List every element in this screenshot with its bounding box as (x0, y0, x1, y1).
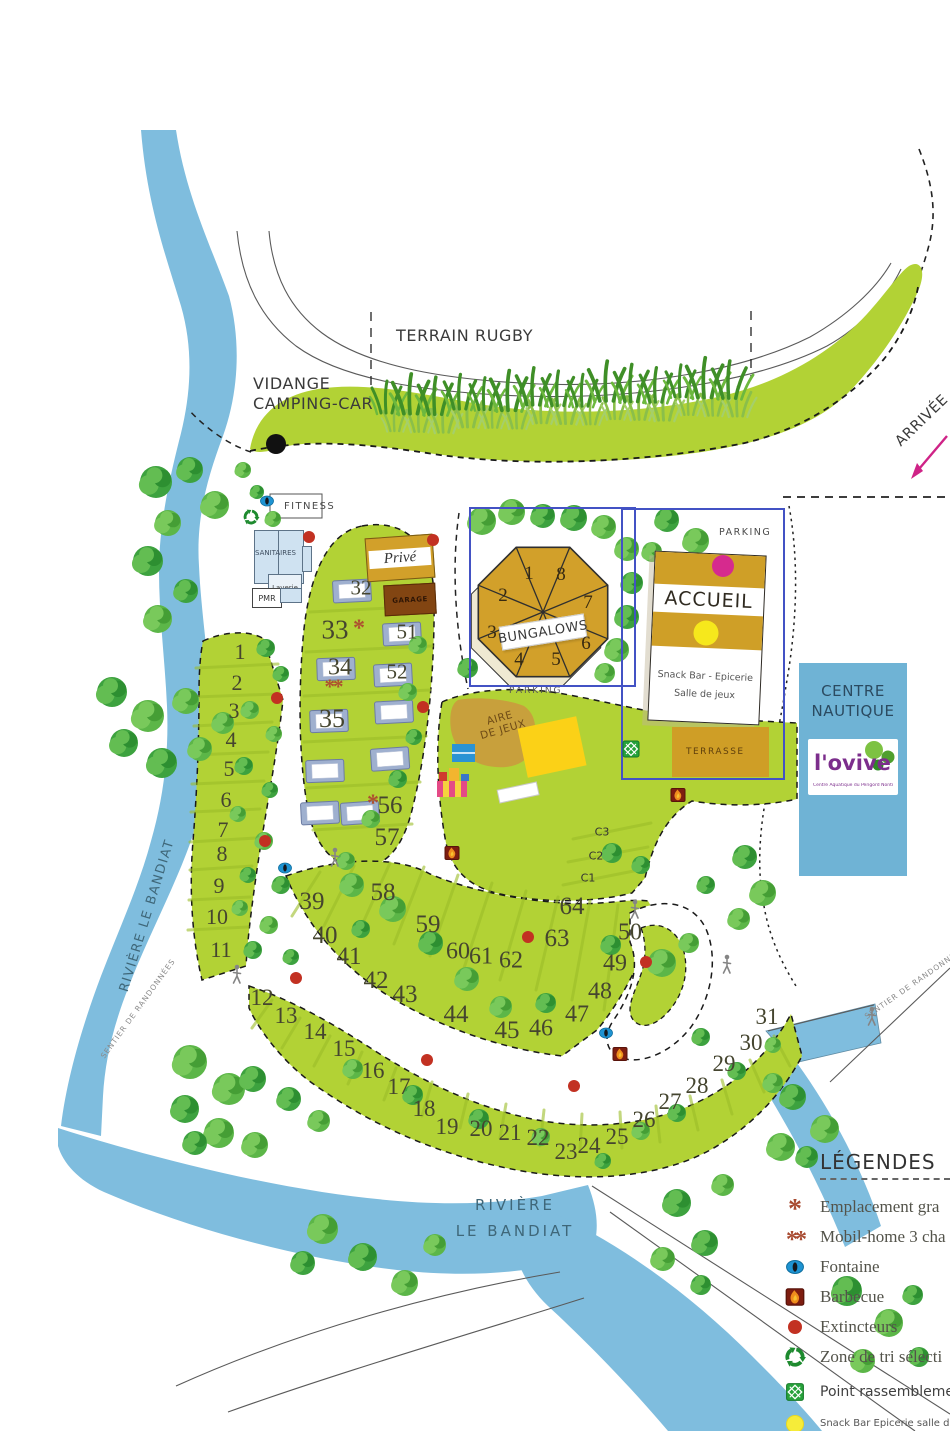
pitch-12: 12 (251, 985, 274, 1011)
bungalow-7: 7 (583, 592, 593, 614)
terrain-rugby-label: Terrain Rugby (396, 326, 533, 345)
tree-icon (614, 605, 639, 629)
pitch-21: 21 (499, 1120, 522, 1146)
pitch-52: 52 (387, 660, 408, 685)
pitch-47: 47 (565, 1002, 589, 1029)
tree-icon (498, 499, 525, 525)
pitch-29: 29 (713, 1051, 736, 1077)
pitch-19: 19 (436, 1114, 459, 1140)
pitch-39: 39 (300, 888, 325, 916)
barbecue-icon (780, 1283, 810, 1311)
tree-icon (614, 537, 639, 561)
legend-item-barbecue: Barbecue (780, 1283, 950, 1311)
pitch-33: 33 (322, 615, 349, 646)
pitch-10: 10 (206, 904, 228, 930)
pitch-6: 6 (221, 787, 232, 813)
tree-icon (682, 528, 709, 554)
zone-C3: C3 (595, 826, 610, 839)
legend-item-assembly-point: Point rassemblemen (780, 1378, 950, 1406)
pitch-42: 42 (364, 967, 389, 995)
pmr-label: PMR (258, 594, 275, 603)
pitch-23: 23 (555, 1139, 578, 1165)
pitch-3: 3 (229, 698, 240, 724)
tree-icon (272, 666, 289, 682)
extinguisher-icon (780, 1313, 810, 1341)
tree-icon (766, 1133, 795, 1161)
pitch-61: 61 (469, 944, 493, 971)
tree-icon (391, 1270, 418, 1296)
pitch-8: 8 (217, 841, 228, 867)
vidange-line2: camping-car (253, 394, 373, 414)
sanitaires-building: SANITAIRES Laverie PMR (252, 528, 310, 614)
ovive-logo: l'ovive Centre Aquatique du Périgord Non… (808, 739, 898, 795)
mobile-home-icon (300, 801, 339, 825)
pitch-17: 17 (388, 1074, 411, 1100)
pitch-32: 32 (351, 576, 372, 601)
legend-item-extinguisher: Extincteurs (780, 1313, 950, 1341)
extinguisher-icon (788, 1320, 802, 1334)
accueil-label: Accueil (664, 587, 753, 613)
pitch-44: 44 (444, 1001, 469, 1029)
terrasse-area: TERRASSE (672, 727, 769, 777)
tree-icon (96, 677, 127, 707)
pitch-56: 56 (378, 792, 403, 820)
campground-map: Terrain Rugby Vidange camping-car Arrivé… (0, 0, 950, 1431)
tree-icon (259, 916, 278, 934)
legend-item-asterisk: *Emplacement gra (780, 1193, 950, 1221)
tree-icon (271, 876, 290, 894)
pitch-9: 9 (214, 873, 225, 899)
pitch-57: 57 (375, 824, 400, 852)
garage-label: GARAGE (392, 595, 428, 605)
centre-nautique-line1: Centre (799, 681, 907, 701)
bungalow-3: 3 (487, 622, 497, 644)
fitness-label: FITNESS (284, 501, 335, 512)
assembly-point-icon (787, 1384, 804, 1401)
pitch-35: 35 (319, 704, 345, 734)
legend-label: Fontaine (820, 1253, 880, 1281)
pitch-63: 63 (545, 925, 570, 953)
pitch-58: 58 (371, 879, 396, 907)
legend-label: Mobil-home 3 cha (820, 1223, 946, 1251)
tree-icon (560, 505, 587, 531)
tree-icon (182, 1131, 207, 1155)
tree-icon (594, 663, 615, 683)
grass-tuft-icon (540, 371, 580, 407)
tree-icon (795, 1146, 818, 1168)
legend-label: Barbecue (820, 1283, 884, 1311)
prive-building: Privé (365, 534, 436, 583)
legend-item-double-asterisk: **Mobil-home 3 cha (780, 1223, 950, 1251)
pitch-16: 16 (362, 1058, 385, 1084)
bungalow-6: 6 (581, 633, 591, 655)
pitch-41: 41 (337, 943, 362, 971)
tree-icon (131, 700, 164, 732)
ovive-label: l'ovive (814, 751, 891, 775)
pitch-28: 28 (686, 1073, 709, 1099)
pitch-18: 18 (413, 1096, 436, 1122)
special-marker-1: ** (325, 675, 342, 700)
tree-icon (691, 1230, 718, 1256)
pitch-24: 24 (578, 1133, 601, 1159)
tree-icon (282, 949, 299, 965)
barbecue-icon (786, 1289, 804, 1305)
special-marker-0: * (353, 616, 365, 643)
tree-icon (732, 845, 757, 869)
tree-icon (264, 511, 281, 527)
tree-icon (467, 507, 496, 535)
rugby-grass-band (250, 264, 922, 462)
tree-icon (530, 504, 555, 528)
tree-icon (250, 485, 264, 499)
pitch-49: 49 (603, 951, 627, 978)
double-asterisk-icon: ** (780, 1223, 810, 1251)
tree-icon (654, 508, 679, 532)
riviere-bottom-line2: le Bandiat (430, 1218, 600, 1244)
legend-item-fountain: Fontaine (780, 1253, 950, 1281)
bungalow-8: 8 (556, 564, 566, 586)
garage-building: GARAGE (383, 583, 437, 617)
legend-item-snack: Snack Bar Epicerie salle de jeu (780, 1410, 950, 1431)
pitch-13: 13 (275, 1003, 298, 1029)
tree-icon (662, 1189, 691, 1217)
tree-icon (604, 638, 629, 662)
pitch-40: 40 (313, 922, 338, 950)
pitch-2: 2 (232, 670, 243, 696)
terrasse-label: TERRASSE (686, 747, 745, 757)
tree-icon (307, 1110, 330, 1132)
tree-icon (727, 908, 750, 930)
vidange-label: Vidange camping-car (253, 374, 373, 414)
zone-C2: C2 (589, 850, 604, 863)
mobile-home-icon (370, 747, 409, 772)
fountain-icon (787, 1261, 804, 1274)
tree-icon (241, 1132, 268, 1158)
parking-bungalows-label: PARKING (509, 686, 563, 696)
pitch-51: 51 (397, 620, 418, 645)
tree-icon (109, 729, 138, 757)
pitch-25: 25 (606, 1124, 629, 1150)
pitch-62: 62 (499, 948, 523, 975)
bungalow-5: 5 (551, 649, 561, 671)
accueil-snack-label: Snack Bar - Epicerie (657, 668, 753, 683)
accueil-games-label: Salle de jeux (674, 687, 735, 701)
recycle-icon (787, 1347, 806, 1366)
tree-icon (711, 1174, 734, 1196)
asterisk-icon: * (780, 1193, 810, 1221)
prive-label: Privé (383, 548, 417, 567)
pitch-22: 22 (527, 1125, 550, 1151)
tree-icon (154, 510, 181, 536)
tree-icon (290, 1251, 315, 1275)
tree-icon (239, 1066, 266, 1092)
tree-icon (690, 1275, 711, 1295)
tree-icon (143, 605, 172, 633)
recycle-icon (780, 1343, 810, 1371)
tree-icon (234, 462, 251, 478)
pitch-26: 26 (633, 1107, 656, 1133)
pitch-27: 27 (659, 1089, 682, 1115)
pitch-4: 4 (226, 727, 237, 753)
centre-nautique-line2: Nautique (799, 701, 907, 721)
mobile-home-icon (374, 700, 413, 724)
ovive-subtitle: Centre Aquatique du Périgord Nontronnais (813, 783, 893, 788)
tree-icon (749, 880, 776, 906)
pitch-11: 11 (210, 937, 231, 963)
tree-icon (591, 515, 616, 539)
centre-nautique-label: Centre Nautique (799, 681, 907, 721)
tree-icon (620, 572, 643, 594)
pitch-5: 5 (224, 756, 235, 782)
tree-icon (650, 1247, 675, 1271)
pitch-64: 64 (560, 893, 585, 921)
tree-icon (457, 658, 478, 678)
riviere-bottom-line1: Rivière (430, 1192, 600, 1218)
legend-label: Snack Bar Epicerie salle de jeu (820, 1410, 950, 1431)
tree-icon (691, 1028, 710, 1046)
pitch-46: 46 (529, 1016, 553, 1043)
river-bottom-right (514, 1211, 822, 1431)
bungalows-octagon (471, 547, 607, 685)
tree-icon (132, 546, 163, 576)
bungalow-1: 1 (524, 563, 534, 585)
bungalow-4: 4 (514, 649, 524, 671)
special-marker-2: * (367, 791, 379, 818)
tree-icon (764, 1037, 781, 1053)
pitch-45: 45 (495, 1017, 520, 1045)
pitch-1: 1 (235, 639, 246, 665)
sanitaires-label: SANITAIRES (255, 549, 296, 557)
legend-item-recycle: Zone de tri sélecti (780, 1343, 950, 1371)
vidange-line1: Vidange (253, 374, 373, 394)
pitch-15: 15 (333, 1036, 356, 1062)
pitch-20: 20 (470, 1116, 493, 1142)
snack-icon (780, 1410, 810, 1431)
pitch-59: 59 (416, 911, 441, 939)
parking-accueil-label: PARKING (719, 527, 771, 538)
mobile-home-icon (306, 759, 345, 782)
riviere-bottom-label: Rivière le Bandiat (430, 1192, 600, 1244)
pitch-31: 31 (756, 1004, 779, 1030)
tree-icon (172, 1045, 207, 1079)
pitch-48: 48 (588, 979, 612, 1006)
accueil-building: Accueil Snack Bar - Epicerie Salle de je… (647, 551, 766, 726)
legend-underline (820, 1178, 950, 1180)
pitch-7: 7 (218, 817, 229, 843)
tree-icon (276, 1087, 301, 1111)
pitch-30: 30 (740, 1030, 763, 1056)
zone-C1: C1 (581, 872, 596, 885)
fountain-icon (780, 1253, 810, 1281)
tree-icon (696, 876, 715, 894)
tree-icon (146, 748, 177, 778)
tree-icon (203, 1118, 234, 1148)
legend-title: Légendes (820, 1150, 936, 1174)
pitch-60: 60 (446, 939, 470, 966)
legend-label: Emplacement gra (820, 1193, 939, 1221)
pitch-14: 14 (304, 1019, 327, 1045)
tree-icon (139, 466, 172, 498)
legend-label: Zone de tri sélecti (820, 1343, 942, 1371)
legend-label: Extincteurs (820, 1313, 897, 1341)
pitch-50: 50 (618, 920, 642, 947)
centre-nautique: Centre Nautique l'ovive Centre Aquatique… (799, 663, 907, 876)
assembly-point-icon (780, 1378, 810, 1406)
pitch-43: 43 (393, 981, 418, 1009)
legend-label: Point rassemblemen (820, 1378, 950, 1406)
bungalow-2: 2 (498, 585, 508, 607)
tree-icon (170, 1095, 199, 1123)
